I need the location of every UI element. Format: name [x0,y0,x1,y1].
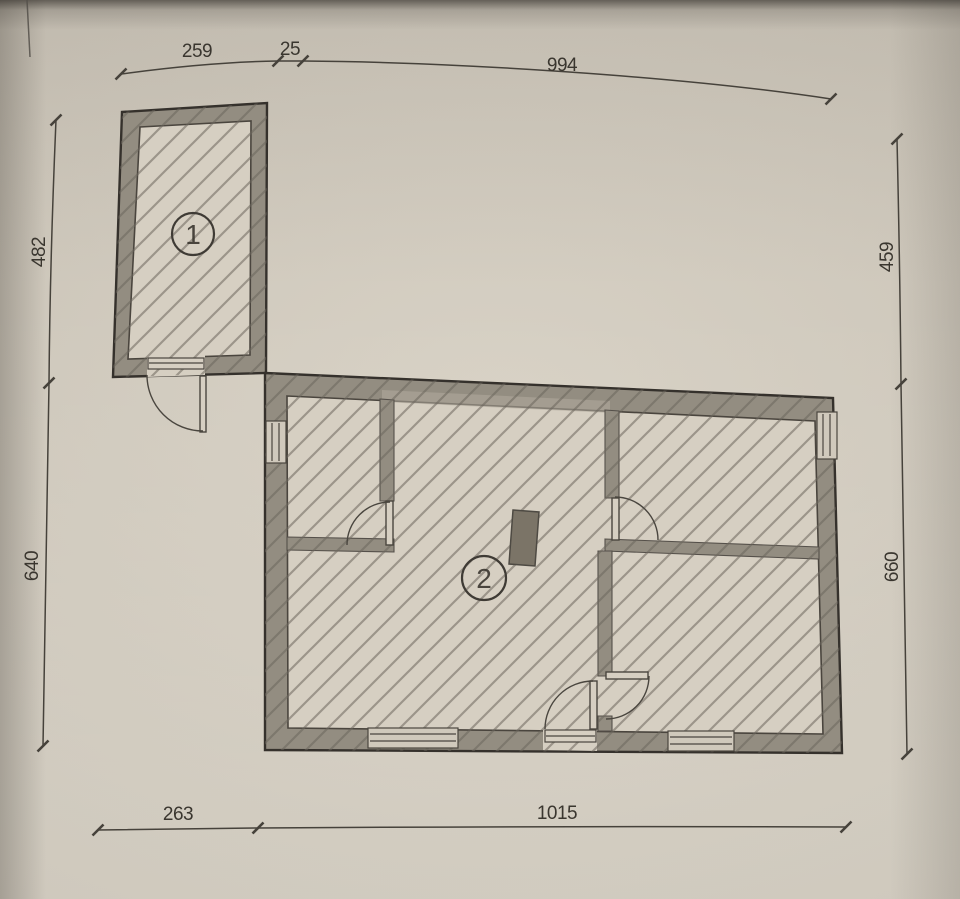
door-building-1-exterior [147,375,206,432]
dim-top-2: 25 [280,39,300,60]
dim-right-2: 660 [882,552,903,582]
chimney [509,510,539,566]
door-sill-building-2 [545,730,596,742]
dim-line-bottom [98,827,846,830]
dim-line-top [121,61,831,99]
dim-ticks-left [38,115,62,752]
dim-left-2: 640 [22,551,43,581]
window-right-wall [817,412,837,459]
dim-top-3: 994 [547,55,578,76]
dim-line-left [43,120,56,746]
dim-line-right [897,139,907,754]
dim-bottom-1: 263 [163,804,193,825]
dim-top-1: 259 [182,41,212,62]
dim-bottom-2: 1015 [537,803,577,824]
floor-plan-drawing: 1 2 [0,0,960,899]
scanned-page: 1 2 [0,0,960,899]
window-bottom-left [368,728,458,748]
dim-right-1: 459 [877,242,898,272]
room-1-label: 1 [185,219,201,250]
page-crease [27,0,30,57]
dim-left-1: 482 [29,237,50,267]
hatch-overlay [90,90,870,770]
room-2-label: 2 [476,563,492,594]
window-bottom-right [668,731,734,751]
door-sill-building-1 [148,358,204,369]
window-left-wall [266,421,286,463]
